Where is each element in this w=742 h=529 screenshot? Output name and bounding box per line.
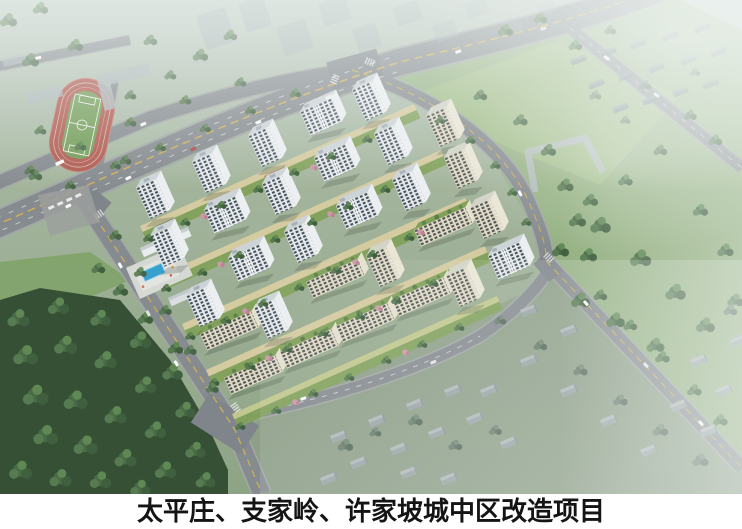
haze-overlays bbox=[0, 0, 742, 494]
project-title: 太平庄、支家岭、许家坡城中区改造项目 bbox=[137, 494, 605, 529]
aerial-rendering bbox=[0, 0, 742, 494]
project-rendering-figure: 太平庄、支家岭、许家坡城中区改造项目 bbox=[0, 0, 742, 529]
caption-bar: 太平庄、支家岭、许家坡城中区改造项目 bbox=[0, 494, 742, 529]
